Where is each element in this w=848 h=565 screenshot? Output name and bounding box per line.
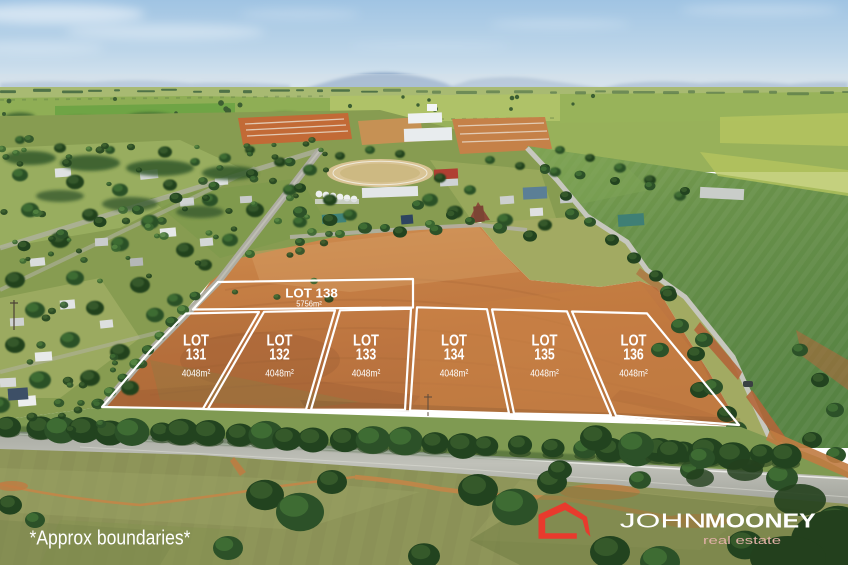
- svg-text:4048m²: 4048m²: [265, 369, 294, 380]
- svg-text:134: 134: [444, 346, 465, 363]
- svg-text:135: 135: [534, 346, 555, 363]
- svg-text:MOONEY: MOONEY: [705, 509, 816, 532]
- svg-text:4048m²: 4048m²: [352, 369, 381, 380]
- svg-text:*Approx boundaries*: *Approx boundaries*: [30, 527, 191, 550]
- svg-text:LOT 138: LOT 138: [285, 286, 338, 301]
- svg-text:133: 133: [356, 346, 377, 363]
- svg-text:4048m²: 4048m²: [619, 369, 648, 380]
- svg-text:136: 136: [623, 346, 644, 363]
- svg-text:132: 132: [269, 346, 290, 363]
- svg-text:5756m²: 5756m²: [296, 299, 322, 308]
- svg-text:real estate: real estate: [703, 535, 781, 547]
- svg-text:131: 131: [186, 346, 207, 363]
- svg-text:4048m²: 4048m²: [530, 369, 559, 380]
- svg-text:4048m²: 4048m²: [182, 369, 211, 380]
- svg-text:4048m²: 4048m²: [440, 369, 469, 380]
- svg-text:JOHN: JOHN: [620, 509, 707, 532]
